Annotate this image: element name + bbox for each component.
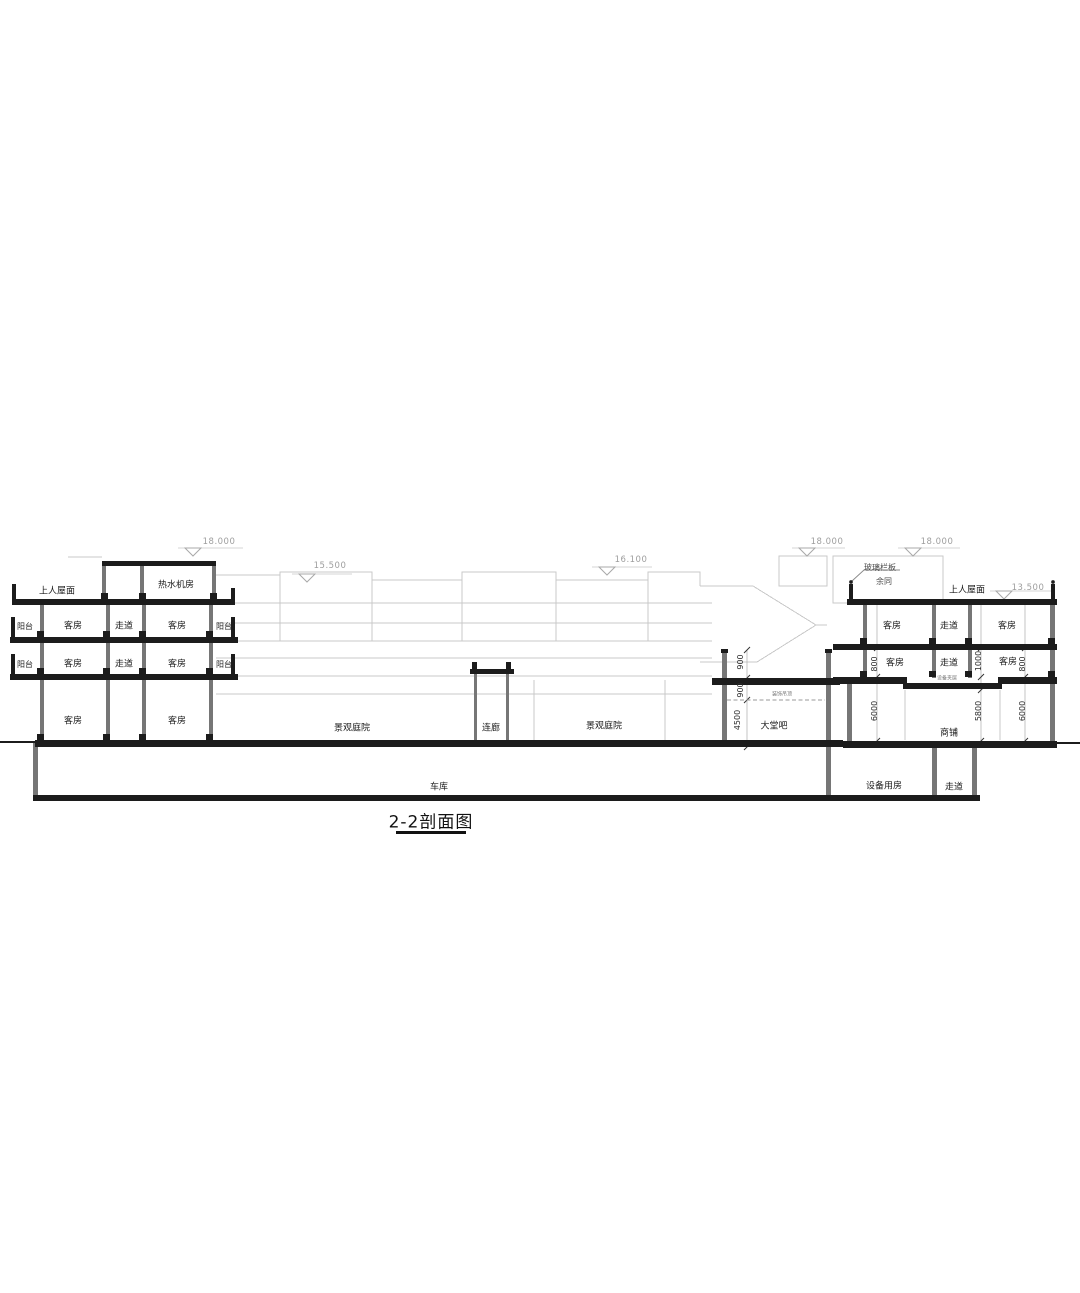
rail-note: 玻璃栏板 [864,564,896,572]
room-label: 热水机房 [158,582,194,591]
room-label: 客房 [999,659,1017,668]
dim-label: 900 [737,682,745,697]
dim-label: 6000 [871,701,879,721]
rail-note: 余同 [876,578,892,586]
room-label: 客房 [168,661,186,670]
room-label: 阳台 [216,623,232,631]
room-label: 客房 [64,718,82,727]
room-label: 客房 [883,623,901,632]
elevation-triangle [599,567,615,575]
elevation-triangle [905,548,921,556]
dim-label: 800 [1019,656,1027,671]
room-label: 阳台 [216,661,232,669]
elevation-value: 13.500 [1012,584,1045,593]
elevation-triangle [799,548,815,556]
room-label: 走道 [940,660,958,669]
room-label: 走道 [940,623,958,632]
room-label: 客房 [168,623,186,632]
elevation-value: 18.000 [811,538,844,547]
room-label: 走道 [115,623,133,632]
room-label: 客房 [64,623,82,632]
room-label: 阳台 [17,661,33,669]
room-label: 商铺 [940,730,958,739]
room-label: 上人屋面 [949,587,985,596]
section-linework [0,0,1080,1293]
room-label: 阳台 [17,623,33,631]
room-label: 客房 [64,661,82,670]
room-label: 景观庭院 [586,723,622,732]
room-label: 客房 [886,660,904,669]
dim-label: 1000 [975,651,983,671]
room-label: 客房 [168,718,186,727]
room-label: 走道 [115,661,133,670]
room-label: 设备用房 [866,783,902,792]
dim-label: 5800 [975,701,983,721]
dim-label: 800 [871,656,879,671]
section-drawing-sheet: 上人屋面 热水机房 阳台 客房 走道 客房 阳台 阳台 客房 走道 客房 阳台 … [0,0,1080,1293]
elevation-value: 18.000 [921,538,954,547]
room-label: 景观庭院 [334,725,370,734]
section-structure [0,561,1080,801]
dim-label: 900 [737,654,745,669]
room-label: 大堂吧 [760,723,787,732]
dim-label: 6000 [1019,701,1027,721]
room-label: 车库 [430,784,448,793]
mezz-note: 设备夹层 [937,677,957,682]
elevation-value: 18.000 [203,538,236,547]
room-label: 连廊 [482,725,500,734]
elevation-triangle [185,548,201,556]
drawing-title: 2-2剖面图 [389,808,474,833]
elevation-value: 16.100 [615,556,648,565]
room-label: 走道 [945,784,963,793]
elevation-triangle [996,591,1012,599]
ceiling-note: 装饰吊顶 [772,693,792,698]
room-label: 客房 [998,623,1016,632]
elevation-triangle [299,574,315,582]
room-label: 上人屋面 [39,588,75,597]
dim-label: 4500 [734,710,742,730]
elevation-value: 15.500 [314,562,347,571]
